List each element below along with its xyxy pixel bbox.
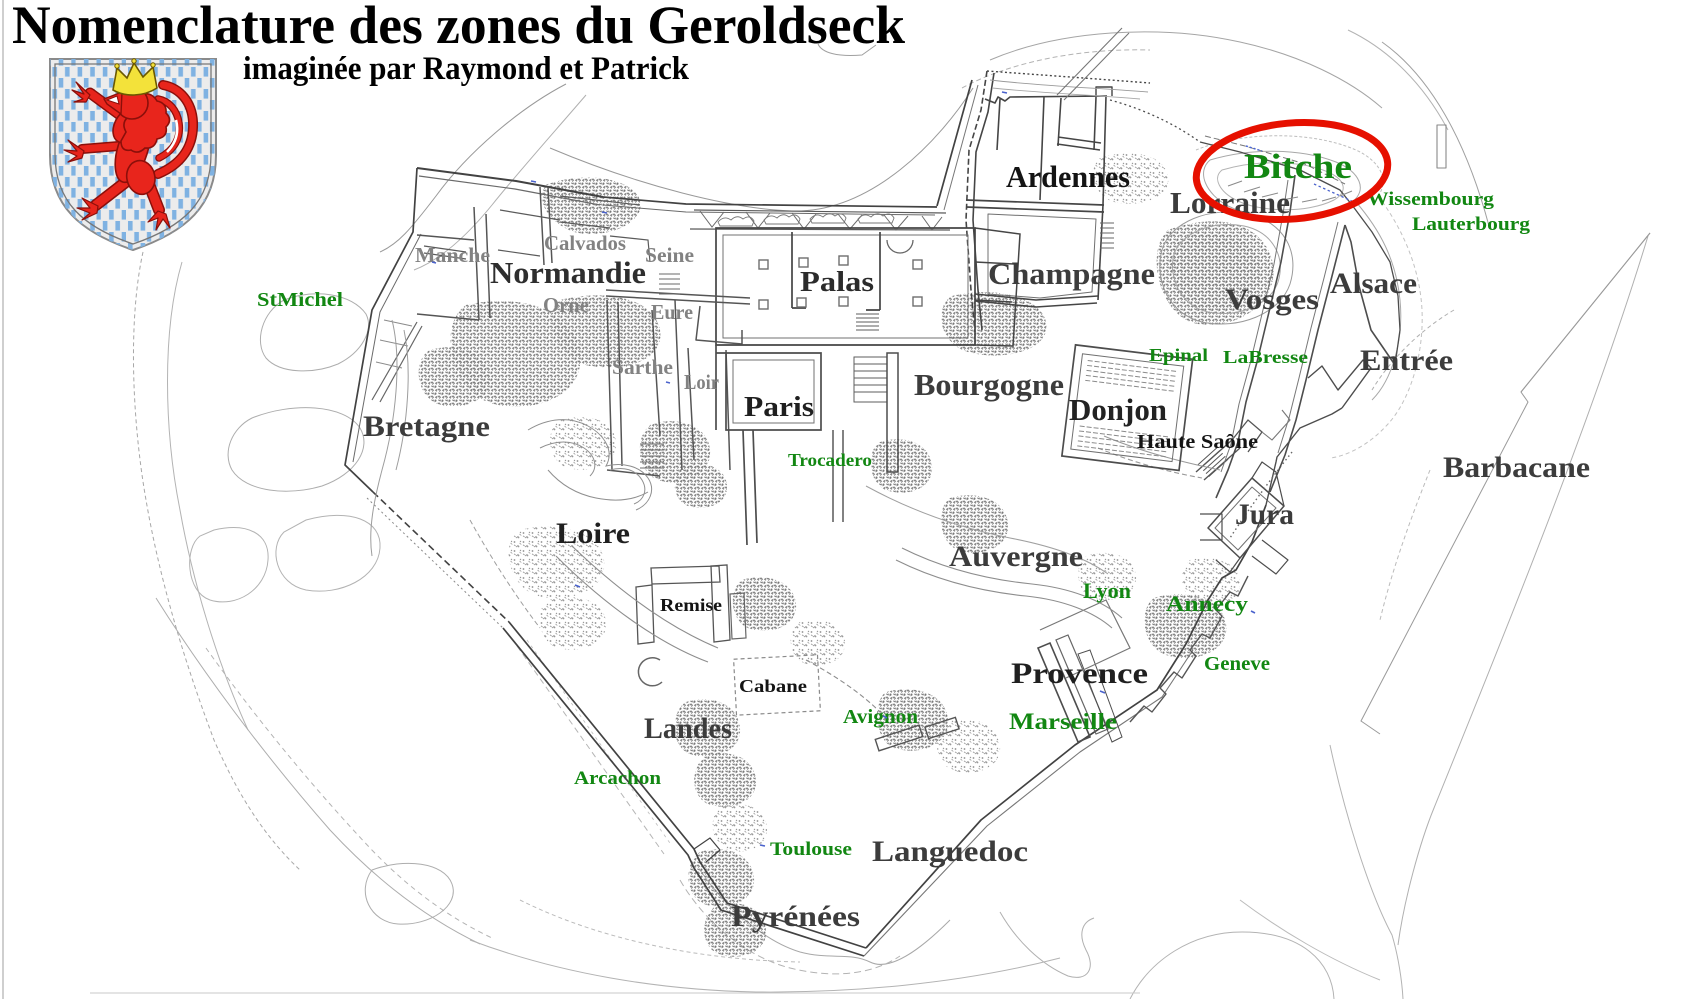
svg-text:Calvados: Calvados bbox=[544, 231, 626, 255]
svg-text:Normandie: Normandie bbox=[490, 255, 646, 290]
svg-text:Loire: Loire bbox=[556, 517, 630, 550]
svg-text:Epinal: Epinal bbox=[1149, 345, 1208, 365]
svg-text:Auvergne: Auvergne bbox=[949, 540, 1083, 573]
svg-text:Pyrénées: Pyrénées bbox=[731, 900, 860, 933]
svg-text:Provence: Provence bbox=[1011, 657, 1148, 690]
svg-text:Donjon: Donjon bbox=[1069, 392, 1167, 427]
svg-text:Bourgogne: Bourgogne bbox=[914, 367, 1064, 402]
svg-text:Alsace: Alsace bbox=[1330, 267, 1417, 300]
svg-text:Bretagne: Bretagne bbox=[363, 410, 490, 443]
svg-text:Orne: Orne bbox=[543, 293, 589, 317]
svg-text:Toulouse: Toulouse bbox=[770, 839, 852, 860]
svg-text:Entrée: Entrée bbox=[1360, 344, 1453, 377]
svg-text:Bitche: Bitche bbox=[1244, 147, 1352, 186]
svg-text:Seine: Seine bbox=[645, 243, 694, 267]
svg-text:LaBresse: LaBresse bbox=[1223, 347, 1308, 367]
svg-text:Remise: Remise bbox=[660, 595, 722, 615]
svg-text:Palas: Palas bbox=[800, 266, 874, 298]
svg-text:Manche: Manche bbox=[415, 243, 490, 267]
svg-text:Languedoc: Languedoc bbox=[872, 835, 1028, 868]
svg-text:Geneve: Geneve bbox=[1204, 653, 1270, 675]
svg-text:Avignon: Avignon bbox=[843, 706, 918, 728]
svg-text:Nomenclature des zones du Gero: Nomenclature des zones du Geroldseck bbox=[12, 0, 905, 55]
svg-text:Loir: Loir bbox=[684, 370, 719, 394]
svg-text:Haute Saône: Haute Saône bbox=[1137, 431, 1258, 453]
svg-text:Sarthe: Sarthe bbox=[612, 355, 673, 379]
svg-text:Trocadero: Trocadero bbox=[788, 450, 872, 470]
svg-text:Barbacane: Barbacane bbox=[1443, 451, 1590, 484]
svg-text:Cabane: Cabane bbox=[739, 676, 807, 696]
svg-text:Marseille: Marseille bbox=[1009, 709, 1117, 734]
svg-text:Ardennes: Ardennes bbox=[1006, 159, 1130, 194]
svg-text:Jura: Jura bbox=[1235, 498, 1294, 531]
svg-text:StMichel: StMichel bbox=[257, 289, 343, 311]
svg-text:Eure: Eure bbox=[651, 300, 693, 324]
svg-text:Arcachon: Arcachon bbox=[574, 768, 661, 789]
svg-text:Wissembourg: Wissembourg bbox=[1367, 189, 1495, 210]
svg-text:Paris: Paris bbox=[744, 391, 814, 423]
svg-text:Vosges: Vosges bbox=[1225, 283, 1319, 316]
svg-text:imaginée par Raymond et Patric: imaginée par Raymond et Patrick bbox=[243, 51, 690, 87]
svg-text:Lyon: Lyon bbox=[1083, 578, 1131, 603]
svg-text:Champagne: Champagne bbox=[988, 256, 1155, 291]
svg-text:Annecy: Annecy bbox=[1166, 591, 1248, 616]
svg-text:Lauterbourg: Lauterbourg bbox=[1412, 214, 1531, 235]
svg-text:Landes: Landes bbox=[644, 712, 732, 745]
